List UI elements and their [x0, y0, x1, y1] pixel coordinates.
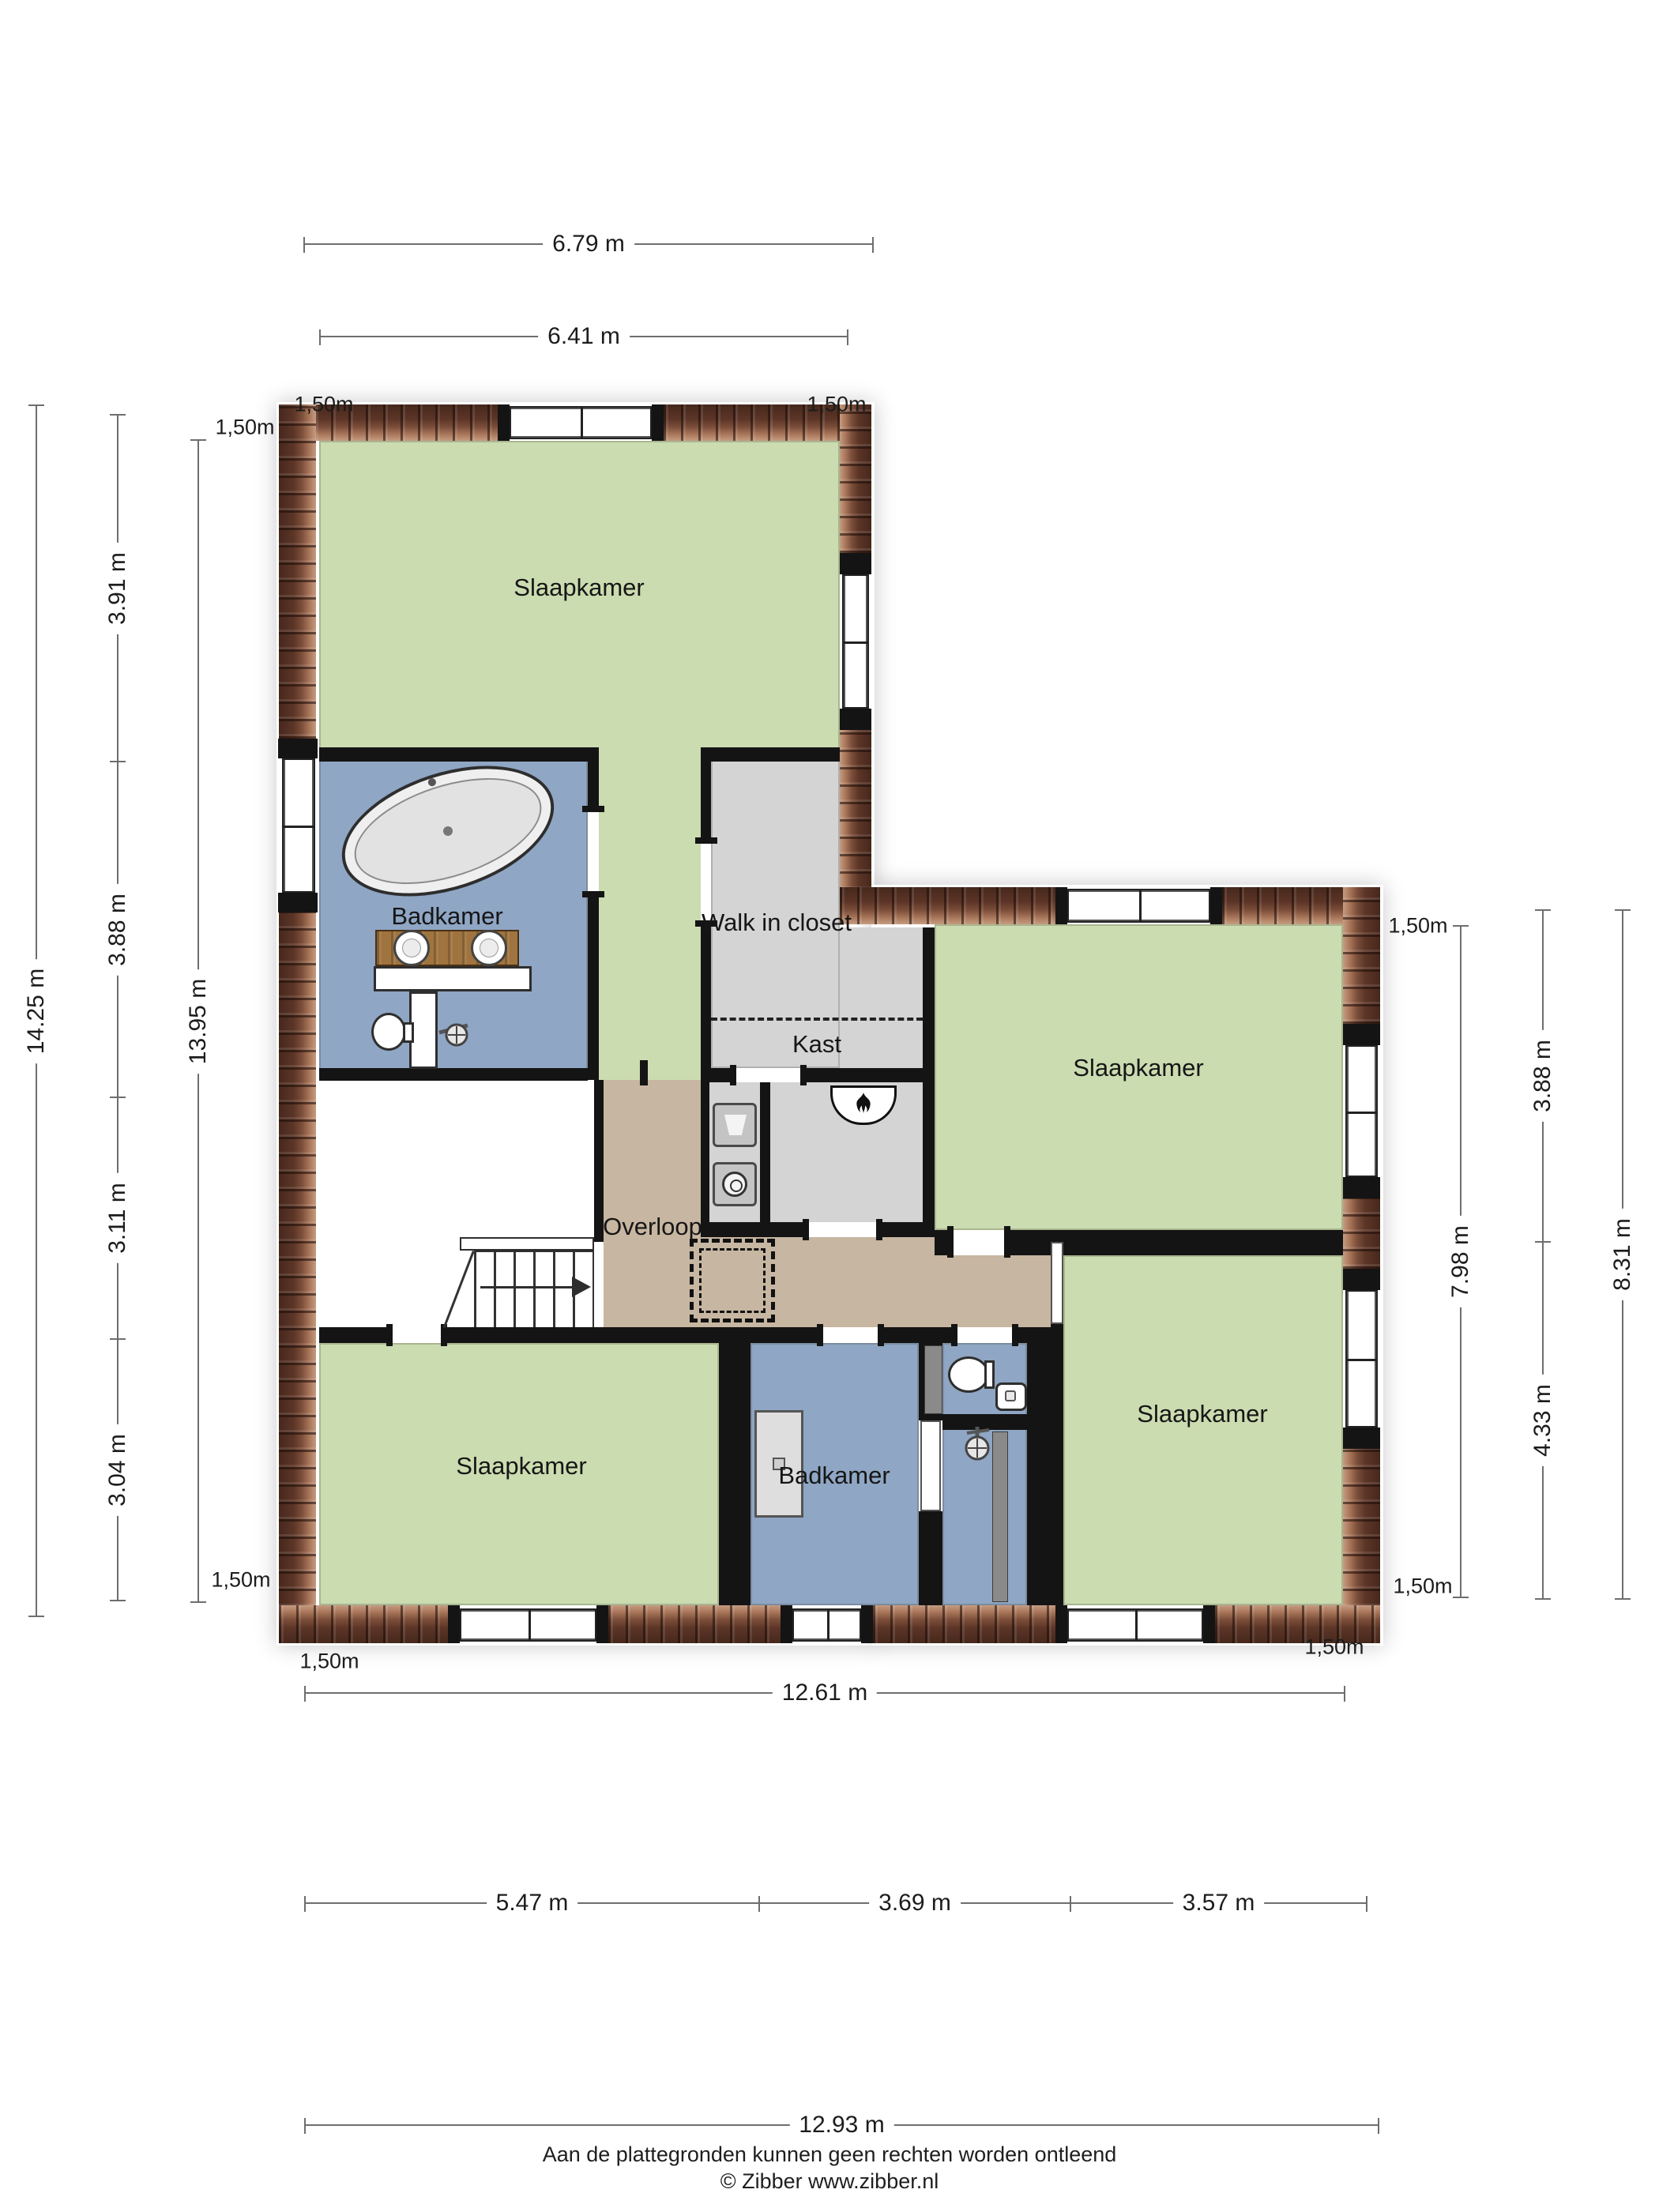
window-bedroom-r-top [1067, 889, 1210, 923]
window-mullion [844, 641, 867, 644]
door-bath-to-shower [920, 1420, 941, 1511]
knee-left-top: 1,50m [215, 416, 274, 440]
dim-label: 6.79 m [543, 229, 634, 259]
washer-icon [713, 1103, 757, 1147]
stairs-arrow-head [572, 1277, 591, 1297]
door-closet-bottom [735, 1068, 803, 1082]
door-bathroom-b [822, 1327, 881, 1343]
washer-drum [724, 1115, 747, 1135]
dim-label: 14.25 m [21, 958, 51, 1063]
jamb [278, 739, 318, 758]
dim-label: 3.11 m [103, 1173, 133, 1263]
tick [640, 1060, 648, 1085]
knee-top-left: 1,50m [294, 393, 353, 417]
brick-wing-top-a [840, 887, 1055, 924]
window-top-bedroom [510, 406, 652, 439]
jamb [1055, 1605, 1067, 1643]
flame-icon [849, 1091, 878, 1119]
wall [803, 1068, 923, 1082]
tick [1012, 1324, 1018, 1346]
wall [444, 1327, 822, 1343]
tick [386, 1324, 393, 1346]
brick-inner-right-b [840, 730, 871, 908]
knee-right-top: 1,50m [1388, 914, 1447, 939]
label-closet: Kast [792, 1030, 841, 1059]
dim-bottom-inner: 12.61 m [305, 1692, 1345, 1694]
door-bedroom-br [1051, 1242, 1063, 1324]
dim-right-seg1: 3.88 m [1542, 910, 1544, 1242]
tick [803, 1219, 809, 1240]
jamb [498, 404, 510, 441]
dim-left-seg2: 3.88 m [117, 762, 118, 1097]
sink-icon [393, 930, 430, 966]
sink-basin [480, 939, 498, 957]
footer-disclaimer: Aan de plattegronden kunnen geen rechten… [0, 2142, 1659, 2167]
wall [919, 1511, 942, 1605]
jamb [1343, 1269, 1380, 1290]
tick [947, 1226, 954, 1258]
window-mullion [581, 408, 583, 438]
window-mullion [1135, 1610, 1138, 1640]
jamb [840, 553, 871, 574]
door-bedroom-bl [391, 1327, 444, 1343]
brick-left-a [279, 404, 316, 739]
jamb [1055, 887, 1067, 924]
window-mullion [827, 1610, 829, 1640]
tick [817, 1324, 823, 1346]
dim-label: 3.88 m [1528, 1030, 1558, 1122]
wall [881, 1327, 956, 1343]
window-bathroom-b-bottom [792, 1608, 861, 1642]
wall [319, 1068, 588, 1081]
brick-inner-right-a [840, 404, 871, 553]
window-mullion [1347, 1112, 1376, 1114]
knee-top-right: 1,50m [807, 393, 866, 417]
window-mullion [1139, 890, 1142, 921]
skylight-inner [699, 1248, 766, 1313]
dim-right-inner: 7.98 m [1460, 926, 1461, 1597]
dim-bottom-seg3: 3.57 m [1070, 1902, 1367, 1904]
skylight-dashed-box [690, 1239, 775, 1322]
knee-bottom-right: 1,50m [1304, 1635, 1364, 1660]
dim-label: 3.88 m [103, 884, 133, 976]
label-walk-in-closet: Walk in closet [702, 908, 852, 937]
jamb [1343, 1428, 1380, 1449]
window-bedroom-tl-right [842, 574, 869, 709]
door-boiler-niche [807, 1222, 879, 1237]
dim-bottom-total: 12.93 m [305, 2124, 1379, 2126]
brick-right-a [1343, 887, 1380, 1024]
dim-label: 12.93 m [789, 2110, 893, 2140]
door-bedroom-r [952, 1230, 1007, 1255]
dim-left-seg1: 3.91 m [117, 415, 118, 762]
wall [1027, 1343, 1063, 1605]
floor-plan: Slaapkamer Badkamer Walk in closet Kast … [0, 0, 1659, 2212]
sink-icon [471, 930, 507, 966]
shower-icon [957, 1427, 997, 1463]
brick-right-b [1343, 1198, 1380, 1269]
window-mullion [1347, 1359, 1376, 1361]
jamb [652, 404, 664, 441]
label-bedroom-bottom-right: Slaapkamer [1137, 1400, 1267, 1428]
jamb [448, 1605, 460, 1643]
dim-left-seg3: 3.11 m [117, 1097, 118, 1339]
tick [695, 837, 717, 844]
closet-dashed-divider [711, 1018, 923, 1021]
wall [923, 927, 935, 1230]
window-bedroom-r-right [1345, 1045, 1378, 1177]
dim-right-seg2: 4.33 m [1542, 1242, 1544, 1599]
sink-tap [1005, 1390, 1016, 1401]
dim-label: 3.04 m [103, 1424, 133, 1516]
jamb [596, 1605, 608, 1643]
room-bedroom-top-left-passage [599, 747, 701, 1080]
brick-bottom-a [279, 1605, 448, 1643]
jamb [781, 1605, 792, 1643]
wall [701, 1222, 807, 1237]
duct [924, 1345, 942, 1414]
tick [878, 1324, 884, 1346]
jamb [1343, 1177, 1380, 1198]
knee-bottom-left: 1,50m [299, 1650, 359, 1674]
tick [1004, 1226, 1010, 1258]
window-bedroom-bl-bottom [460, 1608, 596, 1642]
label-bathroom-top-left: Badkamer [391, 902, 502, 931]
dim-label: 13.95 m [183, 969, 213, 1073]
room-bedroom-bottom-right [1063, 1255, 1343, 1605]
jamb [840, 709, 871, 730]
wall [701, 1080, 709, 1222]
dim-top-total: 6.79 m [304, 243, 873, 245]
wall [319, 1327, 391, 1343]
stairs-landing [460, 1237, 594, 1251]
brick-left-b [279, 912, 316, 1643]
wall [719, 1343, 750, 1605]
room-walk-in-closet-ext [840, 927, 923, 1068]
label-bedroom-right: Slaapkamer [1073, 1054, 1203, 1082]
dim-label: 3.69 m [869, 1888, 961, 1918]
tick [582, 891, 604, 897]
tick [876, 1219, 882, 1240]
window-bedroom-br-right [1345, 1290, 1378, 1428]
label-bedroom-bottom-left: Slaapkamer [456, 1452, 586, 1480]
dim-label: 6.41 m [538, 322, 630, 352]
dim-bottom-seg1: 5.47 m [305, 1902, 759, 1904]
jamb [861, 1605, 873, 1643]
toilet-icon [948, 1356, 989, 1393]
brick-bottom-c [873, 1605, 1055, 1643]
tick [800, 1065, 807, 1085]
jamb [278, 893, 318, 912]
wall [588, 760, 599, 811]
label-bedroom-top-left: Slaapkamer [513, 574, 644, 602]
tick [582, 806, 604, 812]
dim-label: 5.47 m [487, 1888, 578, 1918]
toilet-tank [984, 1360, 995, 1389]
knee-right-bottom: 1,50m [1393, 1574, 1452, 1599]
footer-copyright: © Zibber www.zibber.nl [0, 2169, 1659, 2194]
shower-icon [433, 1016, 472, 1049]
dim-label: 3.91 m [103, 543, 133, 634]
dryer-drum [722, 1172, 747, 1197]
knee-left-bottom: 1,50m [211, 1568, 270, 1593]
dim-left-inner: 13.95 m [197, 440, 199, 1602]
tick [951, 1324, 957, 1346]
window-mullion [529, 1610, 531, 1640]
door-wc [956, 1327, 1015, 1343]
wall [701, 747, 840, 762]
stairs-direction-arrow [480, 1286, 574, 1288]
jamb [1203, 1605, 1215, 1643]
dim-bottom-seg2: 3.69 m [759, 1902, 1070, 1904]
wall [319, 747, 599, 762]
wall [701, 760, 711, 843]
dim-top-inner: 6.41 m [320, 336, 848, 337]
label-landing: Overloop [603, 1213, 702, 1241]
label-bathroom-bottom: Badkamer [778, 1461, 890, 1490]
jamb [1210, 887, 1222, 924]
dim-label: 7.98 m [1446, 1216, 1476, 1307]
wall [1015, 1327, 1051, 1343]
dim-label: 12.61 m [773, 1678, 877, 1708]
dim-left-total: 14.25 m [36, 405, 37, 1616]
dim-label: 8.31 m [1608, 1209, 1638, 1300]
toilet-tank [403, 1022, 414, 1043]
brick-bottom-b [608, 1605, 781, 1643]
dim-label: 4.33 m [1528, 1375, 1558, 1466]
dim-right-total: 8.31 m [1622, 910, 1623, 1599]
door-bathroom-tl [588, 811, 599, 893]
jamb [1343, 1024, 1380, 1045]
dim-label: 3.57 m [1173, 1888, 1265, 1918]
window-bathroom-tl-left [282, 758, 315, 893]
window-bedroom-br-bottom [1067, 1608, 1203, 1642]
tick [730, 1065, 736, 1085]
vanity-shelf [374, 966, 532, 991]
window-mullion [284, 826, 314, 828]
sink-basin [402, 939, 421, 957]
toilet-icon [371, 1013, 406, 1051]
dryer-icon [713, 1162, 757, 1206]
wall [588, 893, 599, 1080]
wall [760, 1082, 770, 1222]
dim-left-seg4: 3.04 m [117, 1339, 118, 1601]
wall [701, 922, 711, 1068]
